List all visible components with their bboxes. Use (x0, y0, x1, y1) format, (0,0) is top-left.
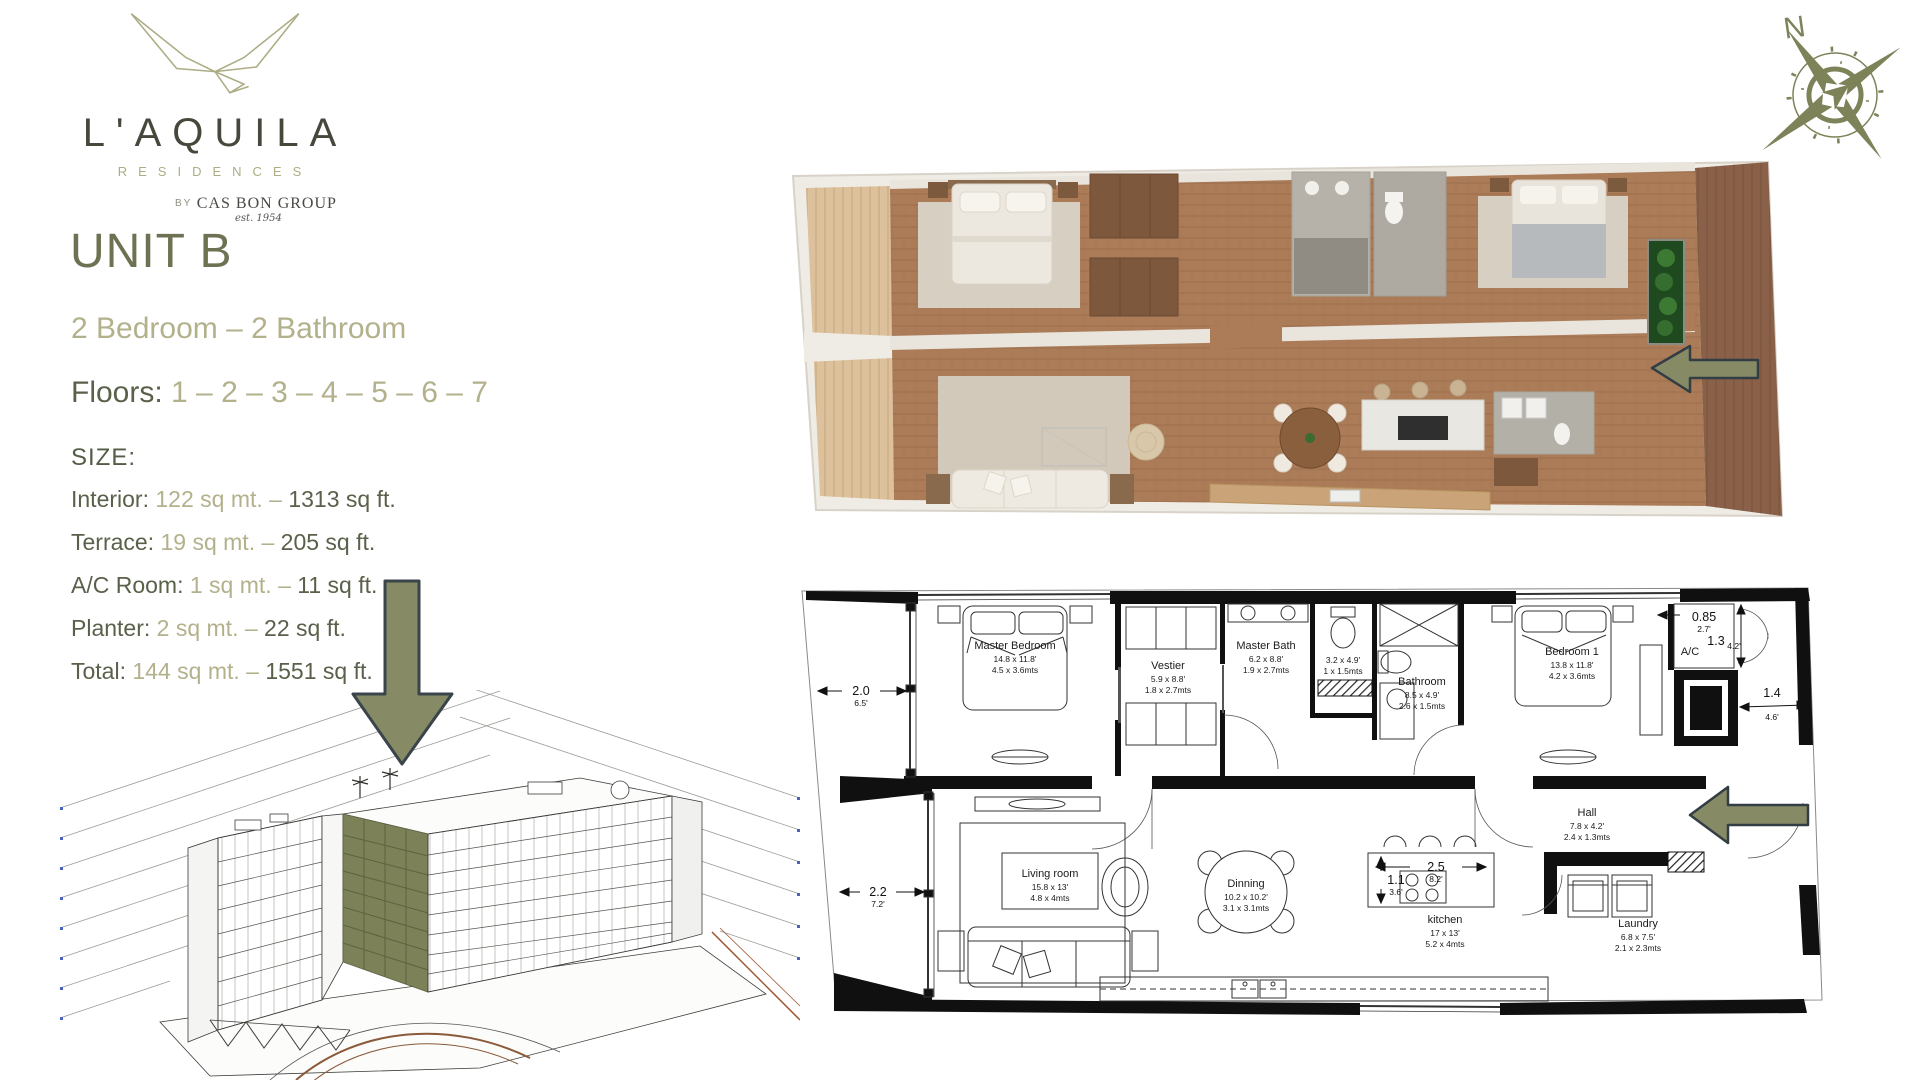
svg-text:3.1 x 3.1mts: 3.1 x 3.1mts (1223, 903, 1269, 913)
svg-text:15.8 x 13': 15.8 x 13' (1032, 882, 1069, 892)
svg-text:3.6': 3.6' (1389, 887, 1403, 897)
svg-text:Vestier: Vestier (1151, 660, 1185, 672)
svg-text:10.2 x 10.2': 10.2 x 10.2' (1224, 892, 1268, 902)
established-year: est. 1954 (235, 213, 355, 224)
svg-text:Master Bedroom: Master Bedroom (974, 640, 1055, 652)
svg-text:Master Bath: Master Bath (1236, 640, 1295, 652)
room-label-wc: 3.2 x 4.9' 1 x 1.5mts (1323, 655, 1362, 676)
svg-text:6.5': 6.5' (854, 698, 868, 708)
brochure-page: L'AQUILA RESIDENCES BY CAS BON GROUP est… (0, 0, 1920, 1080)
entry-deck (1695, 162, 1782, 516)
svg-text:6.2 x 8.8': 6.2 x 8.8' (1249, 654, 1284, 664)
room-label-bedroom1: Bedroom 1 13.8 x 11.8' 4.2 x 3.6mts (1545, 646, 1599, 681)
svg-text:2.5: 2.5 (1427, 860, 1444, 874)
svg-text:2.6 x 1.5mts: 2.6 x 1.5mts (1399, 701, 1445, 711)
svg-text:17 x 13': 17 x 13' (1430, 928, 1460, 938)
room-label-vestier: Vestier 5.9 x 8.8' 1.8 x 2.7mts (1145, 660, 1191, 695)
svg-text:2.1 x 2.3mts: 2.1 x 2.3mts (1615, 943, 1661, 953)
svg-text:4.2': 4.2' (1727, 641, 1741, 651)
unit-configuration: 2 Bedroom – 2 Bathroom (71, 312, 406, 346)
svg-text:5.2 x 4mts: 5.2 x 4mts (1425, 939, 1464, 949)
svg-text:1 x 1.5mts: 1 x 1.5mts (1323, 666, 1362, 676)
rendered-floor-plan-3d (790, 140, 1790, 540)
svg-text:8.5 x 4.9': 8.5 x 4.9' (1405, 690, 1440, 700)
svg-text:2.0: 2.0 (852, 684, 869, 698)
dining-table-3d (1274, 404, 1346, 472)
svg-text:2.4 x 1.3mts: 2.4 x 1.3mts (1564, 832, 1610, 842)
planter-3d (1648, 240, 1684, 344)
brand-byline: BY CAS BON GROUP (175, 195, 355, 213)
svg-text:1.8 x 2.7mts: 1.8 x 2.7mts (1145, 685, 1191, 695)
svg-text:13.8 x 11.8': 13.8 x 11.8' (1550, 660, 1593, 670)
floors-label: Floors: (71, 376, 163, 409)
svg-text:A/C: A/C (1681, 646, 1699, 658)
svg-text:5.9 x 8.8': 5.9 x 8.8' (1151, 674, 1186, 684)
svg-text:3.2 x 4.9': 3.2 x 4.9' (1326, 655, 1361, 665)
svg-text:2.2: 2.2 (869, 885, 886, 899)
configuration-text: 2 Bedroom – 2 Bathroom (71, 312, 406, 345)
technical-floor-plan-2d: 2.0 6.5' 2.2 7.2' 0.85 2.7' 1.3 4.2' A/C… (800, 575, 1830, 1015)
floors-line: Floors: 1 – 2 – 3 – 4 – 5 – 6 – 7 (71, 376, 488, 410)
size-row-interior: Interior: 122 sq mt. – 1313 sq ft. (71, 486, 396, 529)
room-label-dining: Dinning 10.2 x 10.2' 3.1 x 3.1mts (1223, 878, 1269, 913)
svg-text:8.2': 8.2' (1429, 874, 1443, 884)
svg-text:Dinning: Dinning (1227, 878, 1264, 890)
svg-text:Hall: Hall (1578, 807, 1597, 819)
svg-text:1.3: 1.3 (1707, 634, 1724, 648)
bathroom-3d (1374, 172, 1446, 296)
floors-value: 1 – 2 – 3 – 4 – 5 – 6 – 7 (171, 376, 488, 409)
svg-text:14.8 x 11.8': 14.8 x 11.8' (993, 654, 1036, 664)
svg-text:Bedroom 1: Bedroom 1 (1545, 646, 1599, 658)
svg-text:4.6': 4.6' (1765, 712, 1779, 722)
logo: L'AQUILA RESIDENCES BY CAS BON GROUP est… (75, 8, 355, 224)
master-bath-3d (1292, 172, 1370, 296)
svg-text:1.9 x 2.7mts: 1.9 x 2.7mts (1243, 665, 1289, 675)
size-table: SIZE: Interior: 122 sq mt. – 1313 sq ft.… (71, 444, 396, 701)
svg-text:Living room: Living room (1022, 868, 1079, 880)
svg-text:kitchen: kitchen (1428, 914, 1463, 926)
svg-text:6.8 x 7.5': 6.8 x 7.5' (1621, 932, 1656, 942)
svg-text:4.5 x 3.6mts: 4.5 x 3.6mts (992, 665, 1038, 675)
room-label-laundry: Laundry 6.8 x 7.5' 2.1 x 2.3mts (1615, 918, 1661, 953)
svg-text:4.8 x 4mts: 4.8 x 4mts (1030, 893, 1069, 903)
unit-highlight (343, 814, 428, 992)
svg-text:0.85: 0.85 (1692, 610, 1716, 624)
brand-subtitle: RESIDENCES (75, 164, 355, 179)
svg-text:7.8 x 4.2': 7.8 x 4.2' (1570, 821, 1605, 831)
svg-text:4.2 x 3.6mts: 4.2 x 3.6mts (1549, 671, 1595, 681)
byline-prefix: BY (175, 198, 192, 209)
down-arrow-icon (350, 578, 460, 770)
svg-text:2.7': 2.7' (1697, 624, 1711, 634)
svg-text:Laundry: Laundry (1618, 918, 1658, 930)
size-row-terrace: Terrace: 19 sq mt. – 205 sq ft. (71, 529, 396, 572)
svg-text:Bathroom: Bathroom (1398, 676, 1446, 688)
room-label-kitchen: kitchen 17 x 13' 5.2 x 4mts (1425, 914, 1464, 949)
svg-text:1.1: 1.1 (1387, 873, 1404, 887)
svg-text:1.4: 1.4 (1763, 686, 1780, 700)
svg-text:7.2': 7.2' (871, 899, 885, 909)
living-room-3d (926, 376, 1164, 508)
eagle-logo-icon (125, 8, 305, 104)
size-heading: SIZE: (71, 444, 396, 472)
byline-group-name: CAS BON GROUP (197, 195, 337, 212)
size-row-ac: A/C Room: 1 sq mt. – 11 sq ft. (71, 572, 396, 615)
page-title: UNIT B (70, 224, 232, 279)
room-label-bathroom: Bathroom 8.5 x 4.9' 2.6 x 1.5mts (1398, 676, 1446, 711)
size-row-planter: Planter: 2 sq mt. – 22 sq ft. (71, 615, 396, 658)
brand-wordmark: L'AQUILA (75, 111, 355, 156)
